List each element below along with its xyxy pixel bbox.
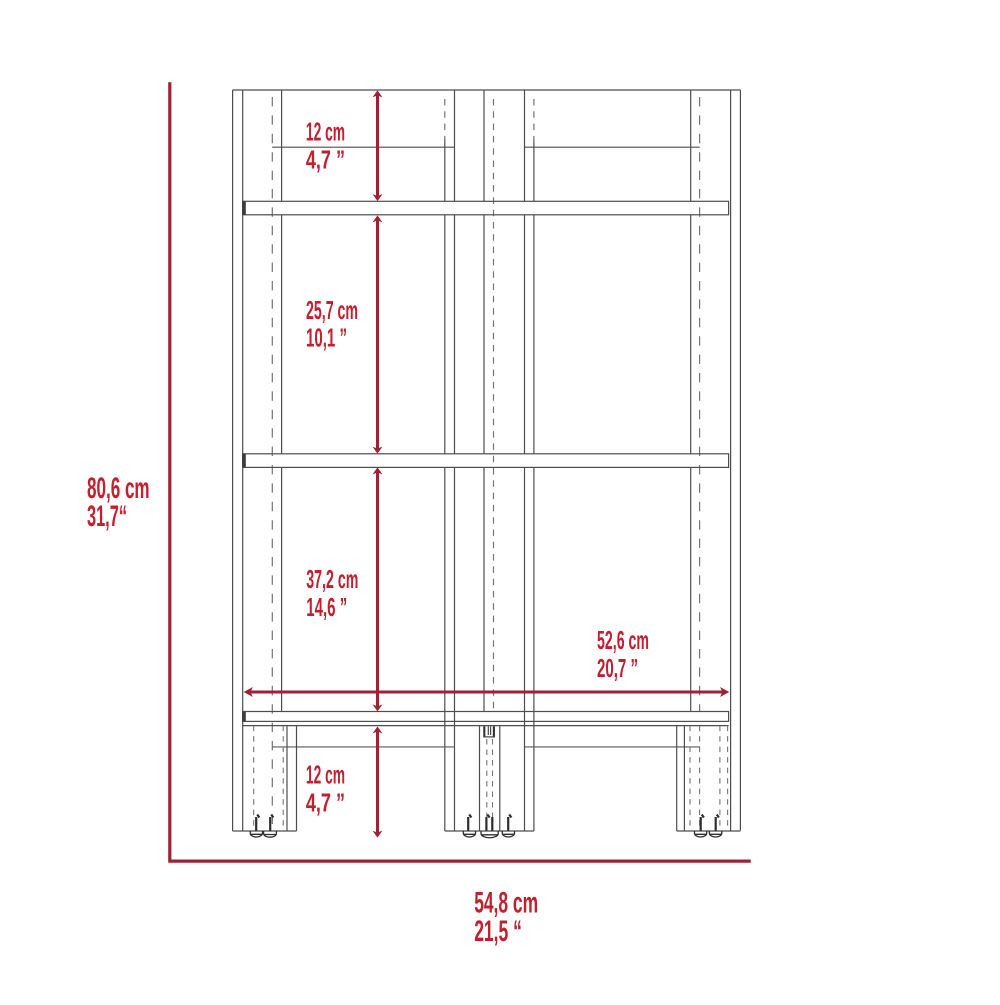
svg-text:25,7 cm: 25,7 cm	[306, 295, 358, 325]
svg-text:10,1 ”: 10,1 ”	[306, 323, 347, 353]
svg-text:12 cm: 12 cm	[306, 760, 345, 790]
svg-text:14,6 ”: 14,6 ”	[306, 592, 347, 622]
svg-text:52,6 cm: 52,6 cm	[597, 625, 649, 655]
svg-text:31,7“: 31,7“	[87, 500, 127, 533]
svg-text:21,5 “: 21,5 “	[474, 915, 522, 948]
svg-text:4,7 ”: 4,7 ”	[306, 787, 345, 817]
svg-text:12 cm: 12 cm	[306, 117, 345, 147]
svg-text:20,7 ”: 20,7 ”	[597, 653, 638, 683]
svg-text:37,2 cm: 37,2 cm	[306, 564, 358, 594]
svg-text:4,7 ”: 4,7 ”	[306, 144, 345, 174]
